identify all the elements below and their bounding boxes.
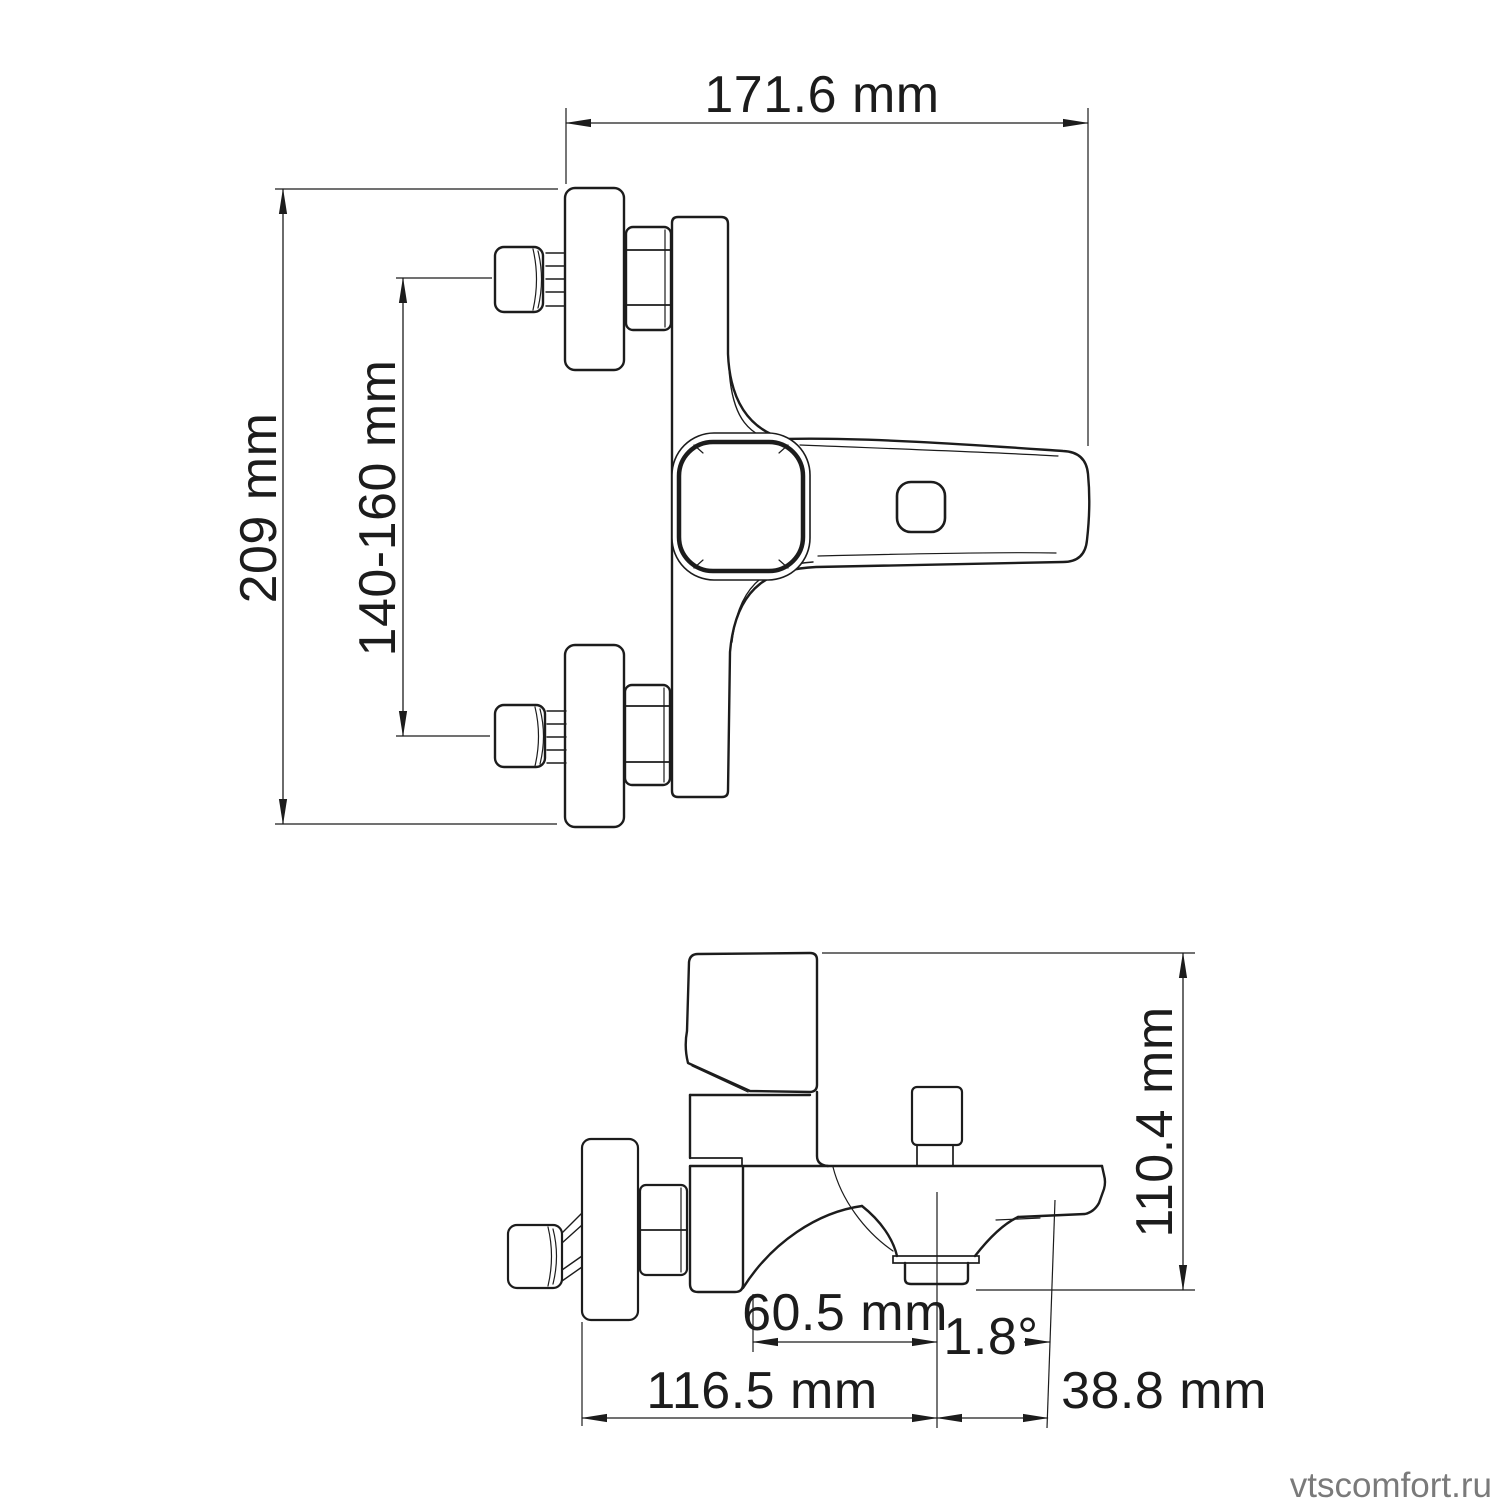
dim-label-aerator-offset: 60.5 mm <box>742 1284 948 1342</box>
dim-side-center-to-tip: 38.8 mm <box>937 1362 1267 1420</box>
spout-side <box>690 1166 1105 1288</box>
bottom-cap-nut <box>495 705 545 767</box>
top-cap-nut <box>495 247 543 312</box>
diverter-knob <box>912 1087 962 1165</box>
bottom-wall-mount <box>495 645 670 827</box>
dim-side-spout-angle: 1.8° <box>943 1200 1055 1428</box>
drawing-page: 171.6 mm 209 mm 140-160 mm <box>0 0 1504 1504</box>
dim-label-center-to-tip: 38.8 mm <box>1061 1362 1267 1420</box>
rear-plate-side <box>690 1166 743 1292</box>
side-wall-mount <box>508 1139 687 1320</box>
bottom-thread-lines <box>547 711 566 763</box>
top-thread-lines <box>546 253 565 306</box>
bottom-hex-nut <box>625 685 670 785</box>
watermark: vtscomfort.ru <box>1290 1466 1492 1504</box>
bottom-flange <box>565 645 624 827</box>
handle-button <box>897 482 945 532</box>
dim-label-inlet-spacing: 140-160 mm <box>349 360 407 657</box>
angle-reference-line <box>1047 1200 1055 1428</box>
dim-front-inlet-spacing: 140-160 mm <box>349 278 492 736</box>
front-view: 171.6 mm 209 mm 140-160 mm <box>230 66 1089 827</box>
dim-label-spout-angle: 1.8° <box>943 1308 1038 1366</box>
dim-label-front-width: 171.6 mm <box>704 66 939 124</box>
side-flange <box>582 1139 638 1320</box>
aerator-lip <box>893 1256 979 1263</box>
top-flange <box>565 188 624 370</box>
top-hex-nut <box>626 227 671 330</box>
dim-side-aerator-offset: 60.5 mm <box>742 1284 948 1352</box>
escutcheon-rosette <box>672 433 810 580</box>
top-wall-mount <box>495 188 671 370</box>
technical-drawing-canvas: 171.6 mm 209 mm 140-160 mm <box>0 0 1504 1504</box>
dim-label-side-height: 110.4 mm <box>1126 1006 1184 1237</box>
lever-handle-side <box>686 953 817 1092</box>
dim-label-wall-to-center: 116.5 mm <box>646 1362 877 1420</box>
side-view: 110.4 mm 60.5 mm 1.8° 116.5 mm 38.8 mm <box>508 953 1267 1428</box>
dim-label-front-height: 209 mm <box>230 413 288 604</box>
valve-body-side <box>690 1092 828 1292</box>
